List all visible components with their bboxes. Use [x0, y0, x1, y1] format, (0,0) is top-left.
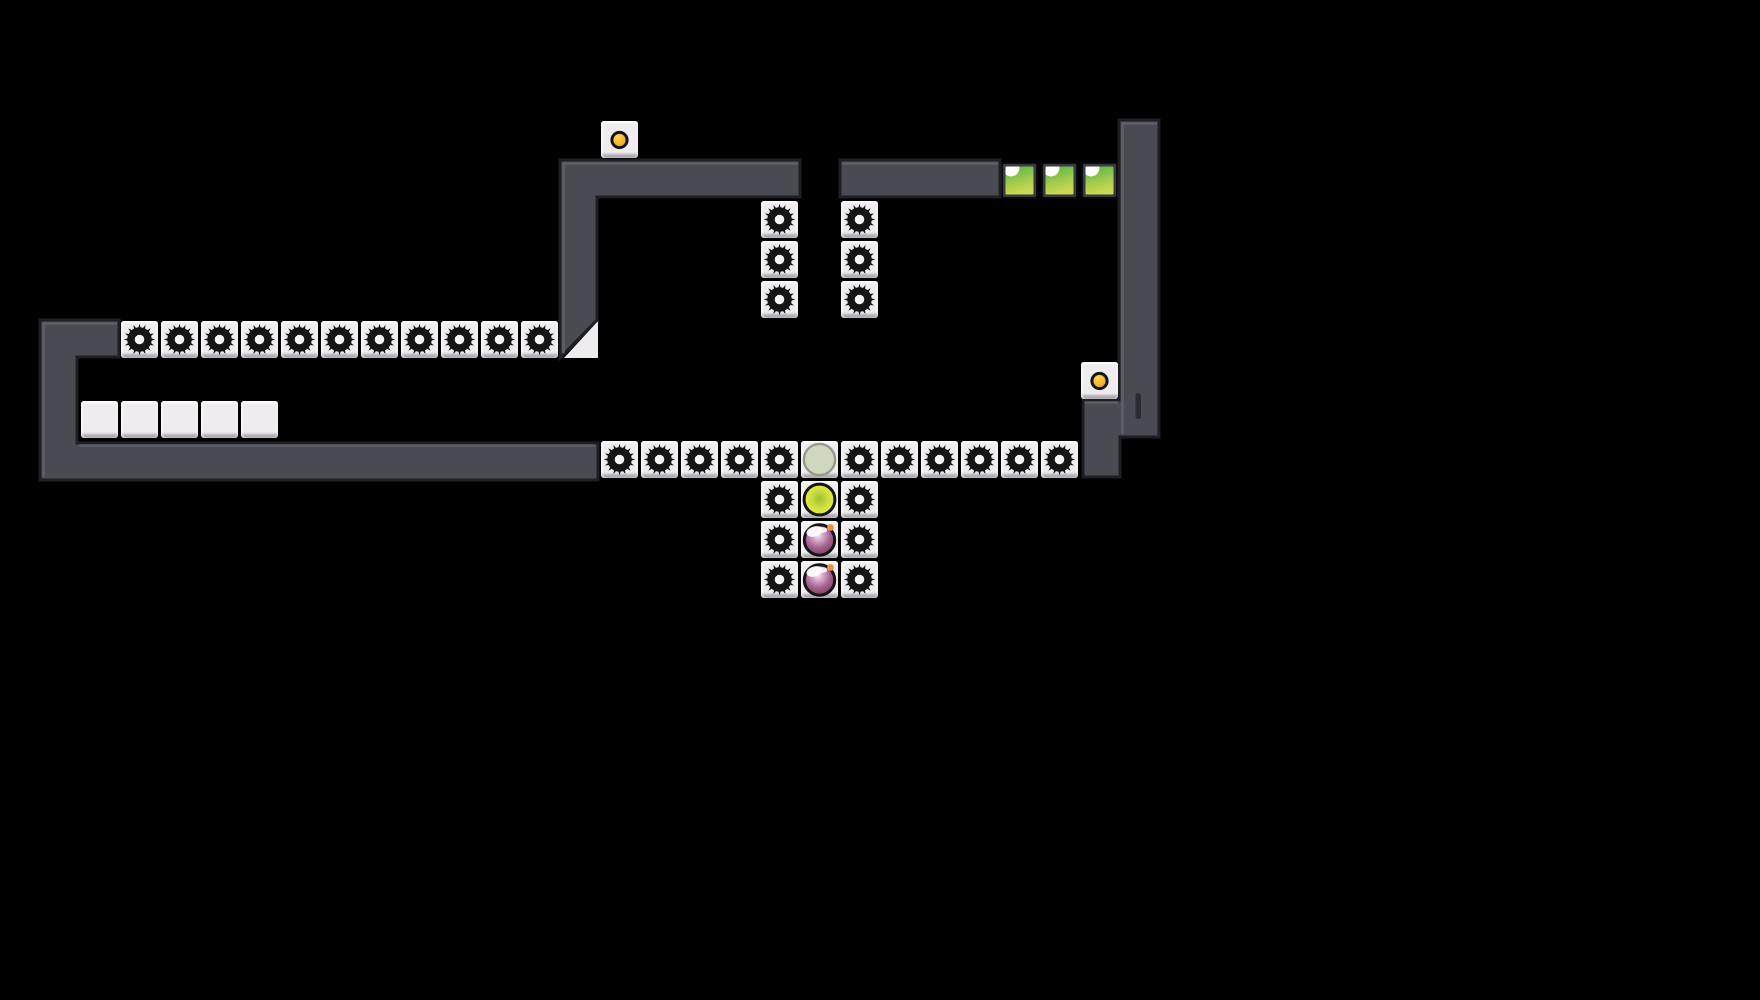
- saw-blade-icon: [161, 321, 198, 358]
- blank-tile: [161, 401, 198, 438]
- puzzle-level-stage: [0, 0, 1760, 1000]
- saw-blade-icon: [521, 321, 558, 358]
- saw-blade-icon: [201, 321, 238, 358]
- saw-blade-icon: [761, 281, 798, 318]
- saw-trap-tile: [841, 201, 878, 238]
- saw-blade-icon: [681, 441, 718, 478]
- saw-trap-tile: [881, 441, 918, 478]
- yellow-ball-icon: [801, 481, 838, 518]
- saw-trap-tile: [281, 321, 318, 358]
- saw-trap-tile: [841, 441, 878, 478]
- saw-blade-icon: [481, 321, 518, 358]
- saw-trap-tile: [1041, 441, 1078, 478]
- saw-trap-tile: [761, 521, 798, 558]
- saw-blade-icon: [761, 561, 798, 598]
- saw-trap-tile: [481, 321, 518, 358]
- saw-trap-tile: [841, 561, 878, 598]
- saw-blade-icon: [841, 481, 878, 518]
- saw-blade-icon: [841, 521, 878, 558]
- saw-blade-icon: [1001, 441, 1038, 478]
- saw-trap-tile: [961, 441, 998, 478]
- saw-trap-tile: [321, 321, 358, 358]
- blank-tile: [81, 401, 118, 438]
- saw-trap-tile: [921, 441, 958, 478]
- saw-trap-tile: [121, 321, 158, 358]
- blank-tile: [121, 401, 158, 438]
- saw-blade-icon: [761, 241, 798, 278]
- saw-blade-icon: [961, 441, 998, 478]
- saw-blade-icon: [841, 561, 878, 598]
- pin-dot-tile: [1081, 362, 1118, 399]
- saw-trap-tile: [841, 481, 878, 518]
- saw-blade-icon: [761, 481, 798, 518]
- saw-blade-icon: [281, 321, 318, 358]
- saw-blade-icon: [241, 321, 278, 358]
- green-block[interactable]: [1001, 162, 1038, 199]
- saw-trap-tile: [441, 321, 478, 358]
- plum-fruit-icon: [801, 561, 838, 598]
- green-block[interactable]: [1081, 162, 1118, 199]
- saw-blade-icon: [721, 441, 758, 478]
- saw-trap-tile: [841, 241, 878, 278]
- saw-trap-tile: [681, 441, 718, 478]
- pin-dot-tile: [601, 121, 638, 158]
- saw-blade-icon: [401, 321, 438, 358]
- pin-dot-icon: [1081, 362, 1118, 399]
- saw-blade-icon: [441, 321, 478, 358]
- saw-trap-tile: [201, 321, 238, 358]
- wall-slot-mark: [1136, 393, 1142, 419]
- saw-blade-icon: [1041, 441, 1078, 478]
- plum-ball-tile[interactable]: [801, 561, 838, 598]
- walls-layer: [0, 0, 1760, 1000]
- pin-dot-icon: [601, 121, 638, 158]
- ball-target-tile: [801, 441, 838, 478]
- saw-blade-icon: [841, 201, 878, 238]
- green-block-icon: [1041, 162, 1078, 199]
- saw-blade-icon: [841, 281, 878, 318]
- plum-ball-tile[interactable]: [801, 521, 838, 558]
- saw-blade-icon: [321, 321, 358, 358]
- saw-trap-tile: [641, 441, 678, 478]
- blank-tile: [241, 401, 278, 438]
- saw-blade-icon: [841, 441, 878, 478]
- saw-trap-tile: [521, 321, 558, 358]
- saw-trap-tile: [761, 281, 798, 318]
- saw-trap-tile: [161, 321, 198, 358]
- saw-blade-icon: [641, 441, 678, 478]
- saw-blade-icon: [761, 521, 798, 558]
- saw-trap-tile: [601, 441, 638, 478]
- saw-blade-icon: [601, 441, 638, 478]
- saw-trap-tile: [761, 441, 798, 478]
- top-right-bar: [840, 160, 1000, 197]
- saw-trap-tile: [401, 321, 438, 358]
- saw-trap-tile: [241, 321, 278, 358]
- green-block[interactable]: [1041, 162, 1078, 199]
- saw-blade-icon: [121, 321, 158, 358]
- saw-trap-tile: [761, 561, 798, 598]
- green-block-icon: [1081, 162, 1118, 199]
- saw-blade-icon: [761, 201, 798, 238]
- saw-blade-icon: [761, 441, 798, 478]
- saw-trap-tile: [761, 481, 798, 518]
- saw-trap-tile: [361, 321, 398, 358]
- saw-trap-tile: [841, 521, 878, 558]
- saw-blade-icon: [361, 321, 398, 358]
- saw-trap-tile: [761, 241, 798, 278]
- yellow-ball-tile[interactable]: [801, 481, 838, 518]
- target-circle-icon: [801, 441, 838, 478]
- blank-tile: [201, 401, 238, 438]
- saw-blade-icon: [881, 441, 918, 478]
- saw-trap-tile: [1001, 441, 1038, 478]
- saw-trap-tile: [761, 201, 798, 238]
- saw-blade-icon: [921, 441, 958, 478]
- saw-trap-tile: [841, 281, 878, 318]
- green-block-icon: [1001, 162, 1038, 199]
- saw-blade-icon: [841, 241, 878, 278]
- saw-trap-tile: [721, 441, 758, 478]
- plum-fruit-icon: [801, 521, 838, 558]
